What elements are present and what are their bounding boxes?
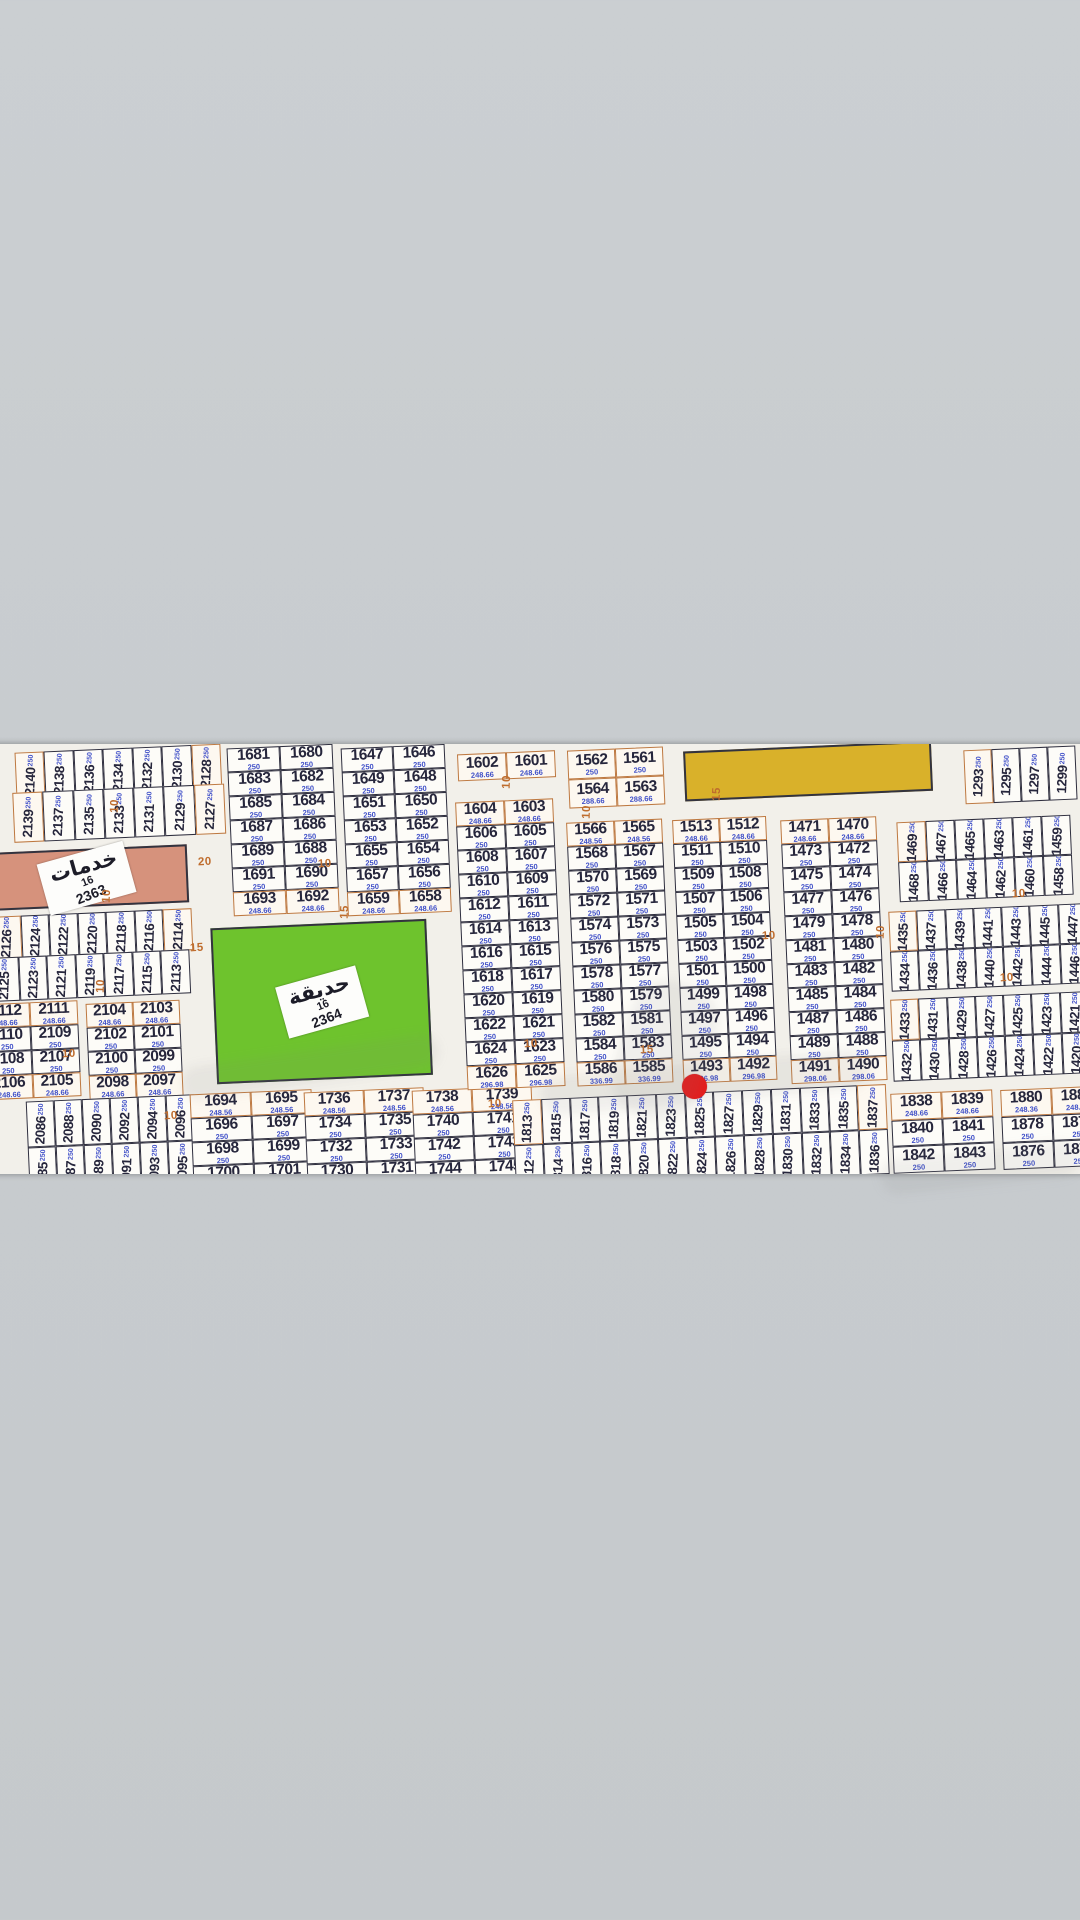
plot-cell[interactable]: 2123250 — [18, 956, 48, 1001]
plot-cell[interactable]: 2102250 — [87, 1026, 135, 1052]
plot-cell[interactable]: 2135250 — [73, 789, 105, 840]
plot-cell[interactable]: 1618250 — [462, 968, 512, 994]
plot-cell[interactable]: 2086250 — [26, 1100, 56, 1147]
plot-cell[interactable]: 1651250 — [343, 794, 396, 820]
plot-cell[interactable]: 1460250 — [1014, 856, 1045, 897]
plot-cell[interactable]: 2098248.66 — [89, 1074, 137, 1100]
plot-cell[interactable]: 1833250 — [800, 1087, 831, 1133]
plot-cell[interactable]: 1458250 — [1043, 855, 1074, 896]
plot-cell[interactable]: 1564288.66 — [568, 778, 617, 809]
plot-cell[interactable]: 1700250 — [193, 1164, 255, 1174]
plot-cell[interactable]: 1602248.66 — [457, 752, 507, 781]
plot-cell[interactable]: 1828250 — [744, 1134, 775, 1174]
plot-cell[interactable]: 1878250 — [1001, 1114, 1053, 1143]
plot-area: 248.66 — [248, 907, 271, 915]
plot-cell[interactable]: 1740250 — [413, 1112, 474, 1139]
plot-number: 2106 — [0, 1076, 25, 1091]
plot-cell[interactable]: 1682250 — [281, 768, 335, 794]
plot-cell[interactable]: 2087250 — [56, 1145, 86, 1174]
plot-cell[interactable]: 1830250 — [773, 1133, 804, 1174]
plot-cell[interactable]: 1650250 — [395, 792, 448, 818]
plot-cell[interactable]: 1426250 — [977, 1036, 1007, 1078]
plot-number: 1572 — [577, 894, 610, 909]
plot-cell[interactable]: 1510250 — [720, 840, 768, 866]
plot-cell[interactable]: 1427250 — [975, 995, 1005, 1037]
plot-area: 250 — [530, 983, 543, 991]
plot-cell[interactable]: 2106248.66 — [0, 1074, 34, 1100]
plot-area: 250 — [852, 953, 865, 961]
plot-cell[interactable]: 1690250 — [285, 864, 339, 890]
plot-cell[interactable]: 1422250 — [1033, 1033, 1063, 1075]
plot-cell[interactable]: 1834250 — [830, 1130, 861, 1174]
plot-cell[interactable]: 1696250 — [191, 1116, 253, 1143]
plot-cell[interactable]: 2097248.66 — [136, 1072, 184, 1098]
plot-cell[interactable]: 1486250 — [837, 1008, 886, 1034]
plot-cell[interactable]: 1681250 — [227, 746, 281, 772]
plot-cell[interactable]: 2091250 — [112, 1143, 142, 1174]
plot-cell[interactable]: 1621250 — [513, 1014, 563, 1040]
plot-cell[interactable]: 1653250 — [344, 818, 397, 844]
plot-cell[interactable]: 1470248.66 — [828, 816, 877, 842]
plot-cell[interactable]: 2114250 — [163, 908, 193, 951]
plot-number: 1507 — [682, 891, 715, 906]
plot-area: 250 — [89, 913, 97, 925]
plot-cell[interactable]: 1461250 — [1012, 816, 1043, 857]
plot-cell[interactable]: 1620250 — [463, 992, 513, 1018]
plot-cell[interactable]: 1483250 — [786, 962, 835, 988]
plot-cell[interactable]: 1434250 — [890, 950, 920, 991]
plot-cell[interactable]: 2118250 — [106, 911, 136, 954]
plot-cell[interactable]: 1813250 — [512, 1099, 543, 1145]
plot-cell[interactable]: 2093250 — [140, 1141, 170, 1174]
plot-cell[interactable]: 1459250 — [1041, 815, 1072, 856]
plot-number: 2112 — [0, 1004, 22, 1019]
plot-cell[interactable]: 1622250 — [465, 1016, 515, 1042]
plot-cell[interactable]: 2124250 — [20, 914, 50, 957]
plot-cell[interactable]: 2112248.66 — [0, 1002, 30, 1028]
plot-cell[interactable]: 1610250 — [458, 872, 508, 898]
plot-cell[interactable]: 1835250 — [828, 1085, 859, 1131]
plot-cell[interactable]: 1692248.66 — [286, 888, 340, 914]
plot-cell[interactable]: 1476250 — [831, 888, 880, 914]
plot-cell[interactable]: 1293250 — [963, 749, 993, 804]
plot-cell[interactable]: 1574250 — [570, 917, 619, 943]
plot-cell[interactable]: 1513248.66 — [672, 818, 720, 844]
plot-cell[interactable]: 1437250 — [917, 909, 947, 950]
plot-cell[interactable]: 2139250 — [12, 792, 44, 843]
plot-cell[interactable]: 1425250 — [1003, 994, 1033, 1036]
plot-cell[interactable]: 1607250 — [506, 846, 556, 872]
plot-cell[interactable]: 1562250 — [567, 749, 616, 780]
plot-cell[interactable]: 1826250 — [715, 1135, 746, 1174]
plot-area: 250 — [179, 1143, 187, 1155]
plot-area: 250 — [175, 910, 183, 922]
plot-cell[interactable]: 1732250 — [306, 1138, 367, 1165]
plot-cell[interactable]: 1502250 — [724, 936, 772, 962]
plot-cell[interactable]: 1435250 — [888, 911, 918, 952]
plot-number: 1841 — [952, 1119, 985, 1134]
plot-cell[interactable]: 1623250 — [515, 1038, 565, 1064]
plot-number: 1608 — [465, 850, 498, 865]
plot-cell[interactable]: 1617250 — [511, 966, 561, 992]
plot-cell[interactable]: 2103248.66 — [132, 1000, 180, 1026]
plot-cell[interactable]: 1646250 — [393, 744, 446, 770]
plot-cell[interactable]: 1656250 — [398, 864, 451, 890]
plot-cell[interactable]: 2119250 — [75, 953, 105, 998]
plot-cell[interactable]: 2108250 — [0, 1050, 33, 1076]
plot-cell[interactable]: 1503250 — [677, 938, 725, 964]
plot-cell[interactable]: 1563288.66 — [616, 775, 665, 806]
plot-cell[interactable]: 1508250 — [721, 864, 769, 890]
plot-cell[interactable]: 2137250 — [43, 790, 75, 841]
plot-cell[interactable]: 2090250 — [82, 1098, 112, 1145]
plot-cell[interactable]: 1880248.36 — [1000, 1088, 1052, 1117]
plot-cell[interactable]: 1619250 — [512, 990, 562, 1016]
plot-number: 1584 — [583, 1038, 616, 1053]
plot-cell[interactable]: 1443250 — [1001, 906, 1031, 947]
plot-cell[interactable]: 1606250 — [456, 824, 506, 850]
plot-cell[interactable]: 2088250 — [54, 1099, 84, 1146]
plot-cell[interactable]: 2131250 — [133, 786, 165, 837]
plot-cell[interactable]: 1462250 — [985, 857, 1016, 898]
plot-cell[interactable]: 1689250 — [231, 842, 285, 868]
plot-cell[interactable]: 2100250 — [88, 1050, 136, 1076]
plot-cell[interactable]: 1295250 — [991, 748, 1021, 803]
plot-cell[interactable]: 1487250 — [789, 1010, 838, 1036]
plot-number: 2097 — [143, 1073, 176, 1088]
plot-cell[interactable]: 1626296.98 — [467, 1064, 517, 1090]
plot-area: 250 — [1041, 904, 1049, 916]
plot-cell[interactable]: 1467250 — [925, 820, 956, 861]
plot-area: 250 — [364, 835, 377, 843]
plot-cell[interactable]: 1568250 — [567, 845, 616, 871]
plot-area: 250 — [1026, 856, 1034, 868]
plot-cell[interactable]: 1565248.56 — [614, 819, 663, 845]
plot-cell[interactable]: 1566248.56 — [566, 821, 615, 847]
plot-cell[interactable]: 1478250 — [832, 912, 881, 938]
plot-cell[interactable]: 1611250 — [508, 894, 558, 920]
plot-cell[interactable]: 2092250 — [110, 1097, 140, 1144]
plot-cell[interactable]: 1686250 — [283, 816, 337, 842]
plot-cell[interactable]: 1445250 — [1030, 904, 1060, 945]
plot-cell[interactable]: 1439250 — [945, 908, 975, 949]
plot-cell[interactable]: 1820250 — [629, 1139, 660, 1174]
plot-cell[interactable]: 1494250 — [728, 1032, 776, 1058]
plot-cell[interactable]: 1444250 — [1031, 944, 1061, 985]
plot-area: 250 — [806, 1003, 819, 1011]
plot-cell[interactable]: 1420250 — [1061, 1032, 1080, 1074]
plot-number: 1658 — [409, 889, 442, 904]
plot-cell[interactable]: 1447250 — [1058, 903, 1080, 944]
plot-cell[interactable]: 1608250 — [457, 848, 507, 874]
plot-cell[interactable]: 1691250 — [232, 866, 286, 892]
plot-cell[interactable]: 1465250 — [954, 819, 985, 860]
plot-cell[interactable]: 2122250 — [49, 913, 79, 956]
plot-area: 250 — [50, 1065, 63, 1073]
plot-cell[interactable]: 1841250 — [942, 1116, 994, 1145]
plot-cell[interactable]: 1573250 — [618, 914, 667, 940]
plot-cell[interactable]: 1658248.66 — [399, 888, 452, 914]
plot-cell[interactable]: 1506250 — [722, 888, 770, 914]
plot-cell[interactable]: 1614250 — [460, 920, 510, 946]
plot-cell[interactable]: 2116250 — [134, 909, 164, 952]
plot-number: 2104 — [93, 1003, 126, 1018]
plot-cell[interactable]: 1500250 — [725, 960, 773, 986]
plot-area: 250 — [247, 763, 260, 771]
plot-cell[interactable]: 1609250 — [507, 870, 557, 896]
plot-number: 1498 — [734, 985, 767, 1000]
services-block[interactable]: خدمات162363 — [0, 844, 189, 911]
plot-cell[interactable]: 1438250 — [947, 948, 977, 989]
plot-cell[interactable]: 1496250 — [727, 1008, 775, 1034]
plot-number: 2120 — [84, 925, 100, 954]
plot-number: 1431 — [925, 1010, 941, 1039]
plot-cell[interactable]: 1840250 — [891, 1118, 943, 1147]
plot-cell[interactable]: 1505250 — [676, 914, 724, 940]
plot-row: 1880248.361881248.36 — [1000, 1086, 1080, 1117]
plot-cell[interactable]: 2121250 — [47, 954, 77, 999]
plot-cell[interactable]: 1603248.66 — [504, 798, 554, 824]
plot-cell[interactable]: 2120250 — [77, 912, 107, 955]
plot-cell[interactable]: 1659248.66 — [347, 890, 400, 916]
plot-cell[interactable]: 1466250 — [927, 860, 958, 901]
plot-cell[interactable]: 1570250 — [568, 869, 617, 895]
plot-cell[interactable]: 1482250 — [834, 960, 883, 986]
plot-cell[interactable]: 2129250 — [164, 785, 196, 836]
plot-cell[interactable]: 1299250 — [1047, 745, 1077, 800]
plot-cell[interactable]: 1730250 — [307, 1162, 368, 1174]
plot-area: 250 — [251, 835, 264, 843]
plot-cell[interactable]: 1832250 — [801, 1132, 832, 1174]
plot-cell[interactable]: 1812250 — [514, 1144, 545, 1174]
plot-cell[interactable]: 2094250 — [138, 1095, 168, 1142]
plot-row: 2106248.662105248.66 — [0, 1072, 82, 1100]
plot-cell[interactable]: 2126250 — [0, 916, 22, 959]
plot-cell[interactable]: 1472250 — [829, 840, 878, 866]
plot-number: 1421 — [1066, 1004, 1080, 1033]
plot-area: 250 — [497, 1126, 510, 1134]
plot-number: 1494 — [736, 1033, 769, 1048]
plot-cell[interactable]: 1480250 — [833, 936, 882, 962]
plot-area: 250 — [104, 1043, 117, 1051]
plot-cell[interactable]: 1624250 — [466, 1040, 516, 1066]
plot-number: 1881 — [1060, 1088, 1080, 1103]
plot-number: 2109 — [38, 1026, 71, 1041]
plot-cell[interactable]: 1837250 — [857, 1084, 888, 1130]
plot-cell[interactable]: 1736248.56 — [304, 1090, 365, 1117]
plot-cell[interactable]: 2125250 — [0, 957, 20, 1002]
plot-cell[interactable]: 2113250 — [161, 949, 191, 994]
plot-cell[interactable]: 1431250 — [918, 997, 948, 1039]
plot-cell[interactable]: 2117250 — [104, 952, 134, 997]
plot-cell[interactable]: 1477250 — [783, 890, 832, 916]
plot-cell[interactable]: 2105248.66 — [33, 1072, 82, 1098]
plot-area: 296.98 — [480, 1081, 503, 1089]
plot-cell[interactable]: 1685250 — [229, 794, 283, 820]
plot-area: 250 — [86, 794, 94, 806]
plot-cell[interactable]: 2109250 — [30, 1024, 79, 1050]
plot-cell[interactable]: 1688250 — [284, 840, 338, 866]
plot-cell[interactable]: 1464250 — [956, 858, 987, 899]
plot-number: 1576 — [579, 942, 612, 957]
plot-area: 250 — [526, 1147, 534, 1159]
plot-cell[interactable]: 1504250 — [723, 912, 771, 938]
plot-block-g1602: 1602248.661601248.66 — [457, 750, 556, 781]
plot-area: 250 — [361, 763, 374, 771]
plot-cell[interactable]: 1575250 — [619, 938, 668, 964]
plot-cell[interactable]: 1647250 — [341, 746, 394, 772]
plot-cell[interactable]: 2115250 — [132, 951, 162, 996]
plot-cell[interactable]: 1297250 — [1019, 747, 1049, 802]
plot-cell[interactable]: 1613250 — [509, 918, 559, 944]
plot-cell[interactable]: 1657250 — [346, 866, 399, 892]
plot-number: 1571 — [625, 892, 658, 907]
plot-area: 250 — [152, 1145, 160, 1157]
plot-cell[interactable]: 1485250 — [788, 986, 837, 1012]
plot-cell[interactable]: 1698250 — [192, 1140, 254, 1167]
plot-cell[interactable]: 1446250 — [1060, 943, 1080, 984]
plot-cell[interactable]: 1654250 — [397, 840, 450, 866]
plot-cell[interactable]: 1421250 — [1060, 991, 1080, 1033]
plot-cell[interactable]: 1440250 — [975, 947, 1005, 988]
plot-area: 250 — [2, 1067, 15, 1075]
plot-cell[interactable]: 1511250 — [673, 842, 721, 868]
plot-cell[interactable]: 1442250 — [1003, 946, 1033, 987]
plot-number: 1685 — [239, 796, 272, 811]
plot-cell[interactable]: 1738248.56 — [412, 1088, 473, 1115]
plot-cell[interactable]: 1604248.66 — [455, 800, 505, 826]
plot-cell[interactable]: 1561250 — [615, 746, 664, 777]
plot-cell[interactable]: 1432250 — [892, 1039, 922, 1081]
plot-cell[interactable]: 1567250 — [615, 843, 664, 869]
plot-cell[interactable]: 1816250 — [572, 1142, 603, 1174]
plot-area: 250 — [695, 955, 708, 963]
plot-cell[interactable]: 1571250 — [617, 890, 666, 916]
plot-cell[interactable]: 1471248.66 — [780, 818, 829, 844]
plot-cell[interactable]: 1474250 — [830, 864, 879, 890]
plot-cell[interactable]: 1423250 — [1031, 992, 1061, 1034]
plot-cell[interactable]: 1814250 — [543, 1143, 574, 1174]
plot-area: 250 — [96, 1147, 104, 1159]
plot-cell[interactable]: 1742250 — [414, 1136, 475, 1163]
plot-number: 1738 — [425, 1090, 458, 1105]
plot-cell[interactable]: 2133250 — [103, 788, 135, 839]
plot-area: 250 — [590, 957, 603, 965]
plot-cell[interactable]: 2110250 — [0, 1026, 31, 1052]
plot-cell[interactable]: 1424250 — [1005, 1035, 1035, 1077]
plot-area: 250 — [59, 956, 67, 968]
plot-cell[interactable]: 1468250 — [898, 861, 929, 902]
plot-area: 250 — [152, 1064, 165, 1072]
plot-cell[interactable]: 1616250 — [461, 944, 511, 970]
plot-cell[interactable]: 1649250 — [342, 770, 395, 796]
plot-cell[interactable]: 1605250 — [505, 822, 555, 848]
plot-number: 1617 — [520, 967, 553, 982]
plot-cell[interactable]: 1648250 — [394, 768, 447, 794]
plot-cell[interactable]: 1734250 — [305, 1114, 366, 1141]
plot-number: 1568 — [575, 846, 608, 861]
plot-cell[interactable]: 1576250 — [571, 941, 620, 967]
plot-cell[interactable]: 1473250 — [781, 842, 830, 868]
plot-number: 1461 — [1019, 829, 1035, 858]
plot-cell[interactable]: 1469250 — [896, 821, 927, 862]
plot-cell[interactable]: 1481250 — [785, 938, 834, 964]
plot-cell[interactable]: 1507250 — [675, 890, 723, 916]
plot-cell[interactable]: 2101250 — [134, 1024, 182, 1050]
plot-cell[interactable]: 1655250 — [345, 842, 398, 868]
plot-cell[interactable]: 1744250 — [415, 1160, 476, 1174]
plot-cell[interactable]: 2085250 — [28, 1146, 58, 1174]
plot-cell[interactable]: 1839248.66 — [941, 1089, 993, 1118]
plot-cell[interactable]: 2127250 — [194, 784, 226, 835]
plot-cell[interactable]: 2089250 — [84, 1144, 114, 1174]
plot-cell[interactable]: 1687250 — [230, 818, 284, 844]
plot-area: 248.66 — [732, 833, 755, 841]
plot-cell[interactable]: 1652250 — [396, 816, 449, 842]
plot-cell[interactable]: 1572250 — [569, 893, 618, 919]
plot-cell[interactable]: 1479250 — [784, 914, 833, 940]
plot-cell[interactable]: 1430250 — [920, 1038, 950, 1080]
plot-cell[interactable]: 1509250 — [674, 866, 722, 892]
plot-cell[interactable]: 1879250 — [1052, 1112, 1080, 1141]
plot-cell[interactable]: 1824250 — [687, 1137, 718, 1174]
plot-cell[interactable]: 1615250 — [510, 942, 560, 968]
plot-cell[interactable]: 1580250 — [573, 988, 622, 1014]
plot-number: 2093 — [146, 1157, 162, 1174]
plot-cell[interactable]: 2107250 — [31, 1048, 80, 1074]
plot-area: 250 — [365, 859, 378, 867]
plot-cell[interactable]: 1433250 — [890, 999, 920, 1041]
plot-number: 1426 — [983, 1049, 999, 1078]
plot-area: 250 — [498, 1150, 511, 1158]
plot-cell[interactable]: 1822250 — [658, 1138, 689, 1174]
plot-cell[interactable]: 1441250 — [973, 907, 1003, 948]
plot-cell[interactable]: 2099250 — [135, 1048, 183, 1074]
plot-cell[interactable]: 1475250 — [782, 866, 831, 892]
plot-number: 2135 — [81, 807, 97, 836]
plot-cell[interactable]: 1601248.66 — [506, 750, 556, 779]
plot-number: 1578 — [580, 966, 613, 981]
plot-number: 2119 — [82, 968, 98, 996]
plot-cell[interactable]: 1684250 — [282, 792, 336, 818]
plot-cell[interactable]: 1612250 — [459, 896, 509, 922]
plot-cell[interactable]: 2111248.66 — [29, 1000, 78, 1026]
plot-cell[interactable]: 1498250 — [726, 984, 774, 1010]
plot-area: 250 — [4, 917, 12, 929]
plot-cell[interactable]: 1569250 — [616, 866, 665, 892]
plot-cell[interactable]: 1582250 — [574, 1012, 623, 1038]
plot-cell[interactable]: 1429250 — [947, 996, 977, 1038]
plot-cell[interactable]: 1463250 — [983, 817, 1014, 858]
plot-cell[interactable]: 2104248.66 — [86, 1002, 134, 1028]
plot-cell[interactable]: 1512248.66 — [719, 816, 767, 842]
plot-area: 250 — [871, 1132, 879, 1144]
plot-cell[interactable]: 1484250 — [835, 984, 884, 1010]
plot-area: 250 — [477, 889, 490, 897]
plot-cell[interactable]: 1578250 — [572, 965, 621, 991]
plot-cell[interactable]: 1838248.66 — [890, 1092, 942, 1121]
commercial-block[interactable] — [683, 744, 933, 802]
plot-cell[interactable]: 1693248.66 — [233, 890, 287, 916]
plot-cell[interactable]: 1428250 — [948, 1037, 978, 1079]
plot-cell[interactable]: 1881248.36 — [1051, 1086, 1080, 1115]
plot-cell[interactable]: 1436250 — [918, 949, 948, 990]
plot-area: 250 — [276, 1130, 289, 1138]
plot-cell[interactable]: 1818250 — [600, 1140, 631, 1174]
plot-cell[interactable]: 1680250 — [279, 744, 333, 770]
plot-number: 1701 — [268, 1163, 301, 1174]
plot-cell[interactable]: 1683250 — [228, 770, 282, 796]
